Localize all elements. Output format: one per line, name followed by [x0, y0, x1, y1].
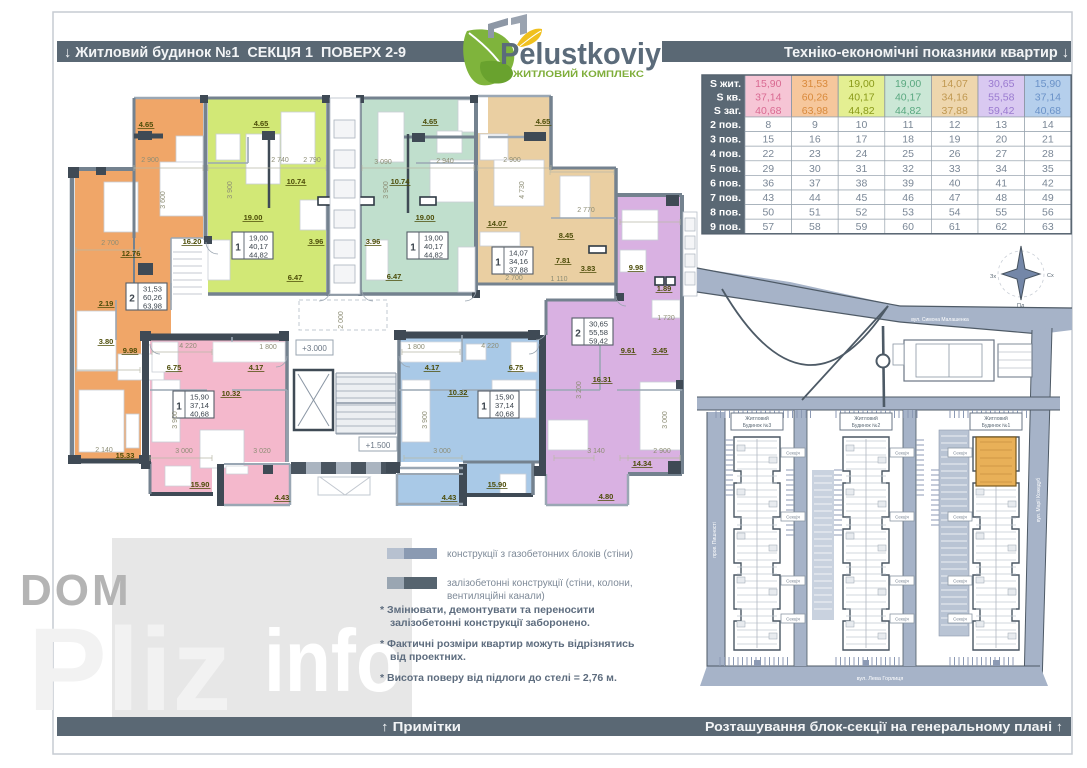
svg-text:Житловий: Житловий [854, 415, 878, 422]
svg-text:2 пов.: 2 пов. [710, 119, 741, 131]
svg-text:42: 42 [1042, 177, 1054, 189]
svg-text:9.98: 9.98 [123, 346, 138, 355]
svg-text:2 900: 2 900 [141, 157, 159, 164]
svg-text:48: 48 [995, 192, 1007, 204]
svg-text:19.00: 19.00 [244, 213, 263, 222]
svg-text:4.65: 4.65 [139, 120, 154, 129]
svg-text:Зх: Зх [990, 274, 996, 280]
svg-text:Житловий: Житловий [984, 415, 1008, 422]
svg-text:14,07: 14,07 [942, 78, 968, 90]
svg-text:34: 34 [995, 163, 1007, 175]
svg-text:конструкції з газобетонних бло: конструкції з газобетонних блоків (стіни… [447, 548, 633, 560]
svg-text:3 900: 3 900 [383, 181, 390, 199]
svg-text:3 900: 3 900 [227, 181, 234, 199]
svg-text:6.75: 6.75 [509, 363, 524, 372]
svg-text:4.80: 4.80 [599, 492, 614, 501]
svg-text:2 740: 2 740 [271, 157, 289, 164]
svg-text:4.43: 4.43 [275, 493, 290, 502]
svg-text:3 000: 3 000 [433, 448, 451, 455]
svg-text:63: 63 [1042, 221, 1054, 233]
svg-text:1: 1 [495, 258, 501, 269]
svg-text:3.80: 3.80 [99, 337, 114, 346]
svg-text:S кв.: S кв. [716, 92, 741, 104]
svg-text:28: 28 [1042, 148, 1054, 160]
svg-text:Секція: Секція [953, 515, 967, 520]
svg-text:2 700: 2 700 [505, 275, 523, 282]
svg-text:Секція: Секція [953, 617, 967, 622]
svg-text:2 000: 2 000 [338, 311, 345, 329]
svg-text:9: 9 [812, 119, 818, 131]
svg-text:9.98: 9.98 [629, 263, 644, 272]
svg-text:49: 49 [1042, 192, 1054, 204]
svg-text:15.90: 15.90 [191, 480, 210, 489]
svg-text:40,68: 40,68 [495, 410, 514, 419]
svg-text:40,68: 40,68 [190, 410, 209, 419]
svg-text:Секція: Секція [895, 579, 909, 584]
svg-text:2: 2 [129, 294, 135, 305]
svg-text:20: 20 [995, 134, 1007, 146]
svg-text:47: 47 [949, 192, 961, 204]
svg-text:вентиляційні канали): вентиляційні канали) [447, 591, 545, 602]
svg-text:1 800: 1 800 [407, 344, 425, 351]
svg-text:2 770: 2 770 [577, 207, 595, 214]
svg-text:4.65: 4.65 [536, 117, 551, 126]
svg-text:залізобетонні конструкції (сті: залізобетонні конструкції (стіни, колони… [447, 577, 633, 589]
svg-text:3.45: 3.45 [653, 346, 668, 355]
svg-text:43: 43 [762, 192, 774, 204]
svg-text:39: 39 [902, 177, 914, 189]
svg-text:3 000: 3 000 [175, 448, 193, 455]
svg-text:4.17: 4.17 [249, 363, 264, 372]
svg-text:1.89: 1.89 [657, 284, 672, 293]
svg-text:6.75: 6.75 [167, 363, 182, 372]
svg-text:62: 62 [995, 221, 1007, 233]
svg-text:30: 30 [809, 163, 821, 175]
svg-text:3 200: 3 200 [576, 381, 583, 399]
svg-text:12.76: 12.76 [122, 249, 141, 258]
svg-text:Техніко-економічні показники к: Техніко-економічні показники квартир ↓ [784, 45, 1069, 61]
svg-text:22: 22 [762, 148, 774, 160]
svg-text:6 пов.: 6 пов. [710, 177, 741, 189]
svg-text:55: 55 [995, 207, 1007, 219]
svg-text:56: 56 [1042, 207, 1054, 219]
svg-text:від проектних.: від проектних. [390, 651, 466, 663]
svg-text:залізобетонні конструкції забо: залізобетонні конструкції заборонено. [390, 617, 590, 629]
svg-text:46: 46 [902, 192, 914, 204]
svg-text:50: 50 [762, 207, 774, 219]
svg-text:29: 29 [762, 163, 774, 175]
svg-text:4.43: 4.43 [442, 493, 457, 502]
svg-text:* Висота поверу від підлоги до: * Висота поверу від підлоги до стелі = 2… [380, 672, 617, 684]
svg-text:8 пов.: 8 пов. [710, 207, 741, 219]
svg-text:40,68: 40,68 [755, 105, 781, 117]
svg-text:вул. Марії Кожедуб: вул. Марії Кожедуб [1036, 478, 1042, 522]
svg-text:45: 45 [856, 192, 868, 204]
svg-text:3 020: 3 020 [253, 448, 271, 455]
svg-text:Розташування блок-секції на ге: Розташування блок-секції на генеральному… [705, 719, 1063, 734]
svg-text:3 600: 3 600 [160, 191, 167, 209]
svg-text:15: 15 [762, 134, 774, 146]
svg-text:Секція: Секція [953, 451, 967, 456]
svg-text:16: 16 [809, 134, 821, 146]
svg-text:14.34: 14.34 [633, 459, 653, 468]
svg-text:8: 8 [765, 119, 771, 131]
svg-text:* Фактичні розміри квартир мож: * Фактичні розміри квартир можуть відріз… [380, 638, 635, 650]
svg-text:Секція: Секція [786, 451, 800, 456]
svg-text:Секція: Секція [953, 579, 967, 584]
svg-text:24: 24 [856, 148, 868, 160]
svg-text:Секція: Секція [895, 515, 909, 520]
svg-text:3 140: 3 140 [587, 448, 605, 455]
svg-text:1: 1 [481, 402, 487, 413]
svg-text:4 пов.: 4 пов. [710, 148, 741, 160]
svg-text:35: 35 [1042, 163, 1054, 175]
svg-text:40: 40 [949, 177, 961, 189]
svg-text:33: 33 [949, 163, 961, 175]
svg-text:вул. Симона Малашенка: вул. Симона Малашенка [911, 317, 969, 323]
svg-text:info: info [264, 611, 402, 710]
svg-text:34,16: 34,16 [942, 92, 968, 104]
svg-text:44,82: 44,82 [249, 251, 268, 260]
svg-text:вул. Лева Горлиця: вул. Лева Горлиця [857, 676, 904, 682]
svg-text:60,26: 60,26 [802, 92, 828, 104]
svg-text:38: 38 [856, 177, 868, 189]
svg-text:Секція: Секція [895, 451, 909, 456]
svg-text:2 790: 2 790 [303, 157, 321, 164]
svg-text:7 пов.: 7 пов. [710, 192, 741, 204]
svg-text:6.47: 6.47 [387, 272, 402, 281]
svg-text:10: 10 [856, 119, 868, 131]
svg-text:Секція: Секція [786, 617, 800, 622]
svg-text:26: 26 [949, 148, 961, 160]
svg-text:Секція: Секція [786, 579, 800, 584]
svg-text:4.65: 4.65 [423, 117, 438, 126]
svg-text:Будинок №3: Будинок №3 [743, 423, 772, 429]
svg-text:Секція: Секція [786, 515, 800, 520]
svg-text:+1.500: +1.500 [366, 441, 391, 450]
svg-text:1 720: 1 720 [657, 315, 675, 322]
svg-text:↑ Примітки: ↑ Примітки [381, 719, 461, 734]
svg-text:Сх: Сх [1047, 273, 1054, 279]
svg-text:S жит.: S жит. [710, 78, 741, 90]
svg-text:2 940: 2 940 [436, 158, 454, 165]
svg-text:6.47: 6.47 [288, 273, 303, 282]
svg-text:Житловий: Житловий [745, 415, 769, 422]
svg-text:53: 53 [902, 207, 914, 219]
svg-text:4 730: 4 730 [519, 181, 526, 199]
svg-text:18: 18 [902, 134, 914, 146]
svg-text:31,53: 31,53 [802, 78, 828, 90]
svg-text:32: 32 [902, 163, 914, 175]
svg-text:3 090: 3 090 [374, 159, 392, 166]
svg-text:36: 36 [762, 177, 774, 189]
svg-text:9 пов.: 9 пов. [710, 221, 741, 233]
svg-text:21: 21 [1042, 134, 1054, 146]
svg-text:2 900: 2 900 [653, 448, 671, 455]
svg-text:15.90: 15.90 [488, 480, 507, 489]
svg-text:30,65: 30,65 [988, 78, 1014, 90]
svg-text:Будинок №1: Будинок №1 [982, 423, 1011, 429]
svg-text:51: 51 [809, 207, 821, 219]
svg-text:Pelustkoviy: Pelustkoviy [500, 36, 662, 71]
svg-text:14: 14 [1042, 119, 1054, 131]
svg-text:2: 2 [575, 329, 581, 340]
svg-text:1 110: 1 110 [551, 276, 568, 283]
svg-text:9.61: 9.61 [621, 346, 636, 355]
svg-text:4.17: 4.17 [425, 363, 440, 372]
svg-text:3.96: 3.96 [366, 237, 381, 246]
svg-text:25: 25 [902, 148, 914, 160]
svg-text:27: 27 [995, 148, 1007, 160]
svg-text:54: 54 [949, 207, 961, 219]
svg-text:3 900: 3 900 [172, 411, 179, 429]
svg-text:2 900: 2 900 [503, 157, 521, 164]
svg-text:40,68: 40,68 [1035, 105, 1061, 117]
svg-text:ЖИТЛОВИЙ КОМПЛЕКС: ЖИТЛОВИЙ КОМПЛЕКС [512, 68, 644, 80]
svg-text:4 220: 4 220 [481, 343, 499, 350]
svg-text:12: 12 [949, 119, 961, 131]
svg-text:S заг.: S заг. [714, 105, 741, 117]
svg-text:40,17: 40,17 [848, 92, 874, 104]
svg-text:3 900: 3 900 [422, 411, 429, 429]
svg-text:+3.000: +3.000 [302, 344, 327, 353]
svg-text:37,88: 37,88 [942, 105, 968, 117]
svg-text:59,42: 59,42 [988, 105, 1014, 117]
svg-text:10.74: 10.74 [287, 177, 307, 186]
svg-text:17: 17 [856, 134, 868, 146]
svg-text:Будинок №2: Будинок №2 [852, 423, 881, 429]
svg-text:61: 61 [949, 221, 961, 233]
svg-text:1 800: 1 800 [259, 344, 277, 351]
svg-text:15,90: 15,90 [755, 78, 781, 90]
svg-text:Пд: Пд [1017, 303, 1025, 309]
svg-text:15.33: 15.33 [116, 451, 135, 460]
svg-text:14.07: 14.07 [488, 219, 507, 228]
svg-text:19,00: 19,00 [848, 78, 874, 90]
svg-text:16.20: 16.20 [183, 237, 202, 246]
svg-text:19,00: 19,00 [895, 78, 921, 90]
svg-text:4.65: 4.65 [254, 119, 269, 128]
svg-text:37,14: 37,14 [1035, 92, 1061, 104]
svg-text:пров. Пишності: пров. Пишності [712, 522, 718, 558]
svg-text:↓ Житловий будинок №1 СЕКЦІЯ: ↓ Житловий будинок №1 СЕКЦІЯ 1 ПОВЕРХ 2-… [64, 45, 406, 61]
svg-text:16.31: 16.31 [593, 375, 612, 384]
svg-text:19.00: 19.00 [416, 213, 435, 222]
svg-text:44: 44 [809, 192, 821, 204]
svg-text:63,98: 63,98 [143, 302, 162, 311]
svg-text:58: 58 [809, 221, 821, 233]
svg-text:13: 13 [995, 119, 1007, 131]
svg-text:23: 23 [809, 148, 821, 160]
svg-text:60: 60 [902, 221, 914, 233]
svg-text:59: 59 [856, 221, 868, 233]
svg-text:Pliz: Pliz [28, 604, 231, 736]
svg-text:11: 11 [903, 119, 914, 131]
svg-text:44,82: 44,82 [895, 105, 921, 117]
svg-text:37,14: 37,14 [755, 92, 781, 104]
svg-text:2 700: 2 700 [101, 240, 119, 247]
svg-text:63,98: 63,98 [802, 105, 828, 117]
svg-text:3 000: 3 000 [662, 411, 669, 429]
svg-text:3.83: 3.83 [581, 264, 596, 273]
svg-text:31: 31 [856, 163, 868, 175]
svg-text:1: 1 [410, 243, 416, 254]
svg-text:19: 19 [949, 134, 961, 146]
svg-text:37: 37 [809, 177, 821, 189]
svg-text:40,17: 40,17 [895, 92, 921, 104]
svg-text:10.32: 10.32 [222, 389, 241, 398]
svg-text:10.32: 10.32 [449, 388, 468, 397]
svg-text:1: 1 [176, 402, 182, 413]
svg-text:55,58: 55,58 [988, 92, 1014, 104]
svg-text:10.74: 10.74 [391, 177, 411, 186]
svg-text:44,82: 44,82 [424, 251, 443, 260]
svg-text:37,88: 37,88 [509, 266, 528, 275]
svg-text:44,82: 44,82 [848, 105, 874, 117]
svg-text:5 пов.: 5 пов. [710, 163, 741, 175]
svg-text:2 140: 2 140 [95, 447, 113, 454]
svg-text:59,42: 59,42 [589, 337, 608, 346]
svg-text:3.96: 3.96 [309, 237, 324, 246]
svg-text:7.81: 7.81 [556, 256, 571, 265]
svg-text:1: 1 [235, 243, 241, 254]
svg-text:41: 41 [995, 177, 1007, 189]
svg-text:3 пов.: 3 пов. [710, 134, 741, 146]
svg-text:4 220: 4 220 [179, 343, 197, 350]
svg-text:15,90: 15,90 [1035, 78, 1061, 90]
svg-text:2.19: 2.19 [99, 299, 114, 308]
svg-text:Секція: Секція [895, 617, 909, 622]
svg-text:* Змінювати, демонтувати та пе: * Змінювати, демонтувати та переносити [380, 604, 595, 616]
svg-text:52: 52 [856, 207, 868, 219]
svg-text:57: 57 [762, 221, 774, 233]
svg-text:8.45: 8.45 [559, 231, 574, 240]
